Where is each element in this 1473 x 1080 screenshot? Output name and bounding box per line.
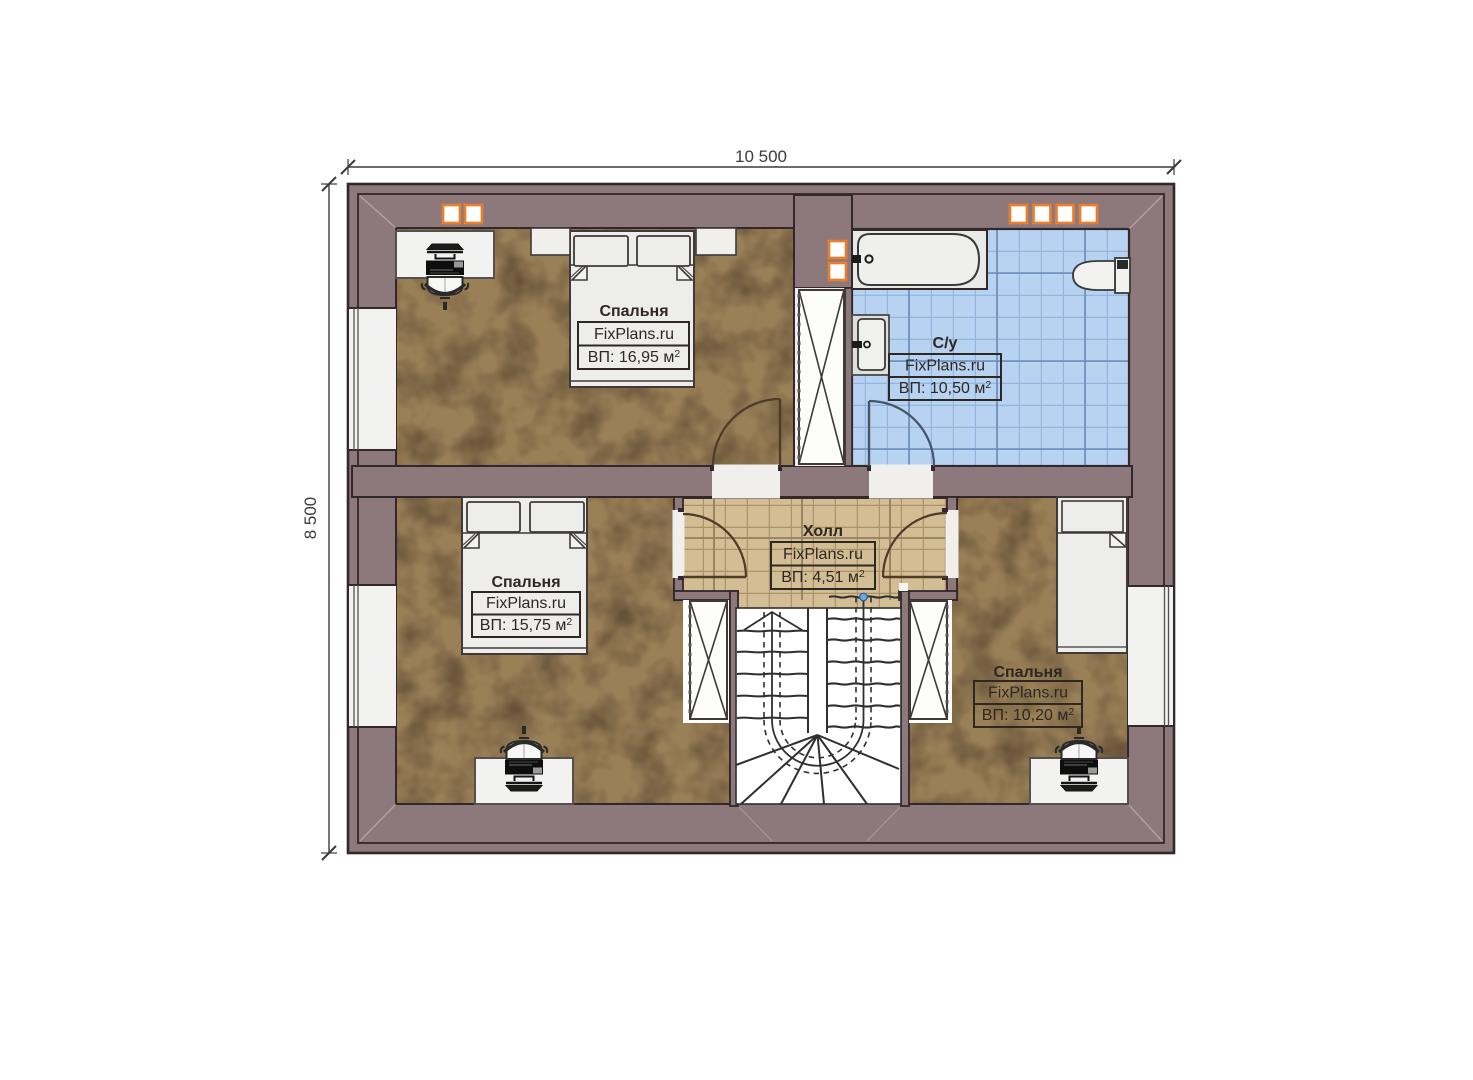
svg-text:ВП: 10,50 м2: ВП: 10,50 м2 [899,379,992,397]
svg-text:Спальня: Спальня [491,574,560,591]
svg-text:С/у: С/у [933,335,958,352]
svg-text:Спальня: Спальня [599,303,668,320]
svg-text:Холл: Холл [803,523,843,540]
svg-text:FixPlans.ru: FixPlans.ru [486,595,566,612]
svg-text:ВП: 15,75 м2: ВП: 15,75 м2 [480,616,573,634]
svg-text:FixPlans.ru: FixPlans.ru [988,685,1068,702]
svg-text:FixPlans.ru: FixPlans.ru [783,546,863,563]
svg-text:Спальня: Спальня [993,664,1062,681]
svg-text:FixPlans.ru: FixPlans.ru [594,326,674,343]
svg-text:10 500: 10 500 [735,147,787,166]
svg-text:ВП: 10,20 м2: ВП: 10,20 м2 [982,706,1075,724]
svg-text:FixPlans.ru: FixPlans.ru [905,358,985,375]
svg-text:8 500: 8 500 [301,497,320,540]
svg-text:ВП: 4,51 м2: ВП: 4,51 м2 [781,568,865,586]
svg-text:ВП: 16,95 м2: ВП: 16,95 м2 [588,348,681,366]
